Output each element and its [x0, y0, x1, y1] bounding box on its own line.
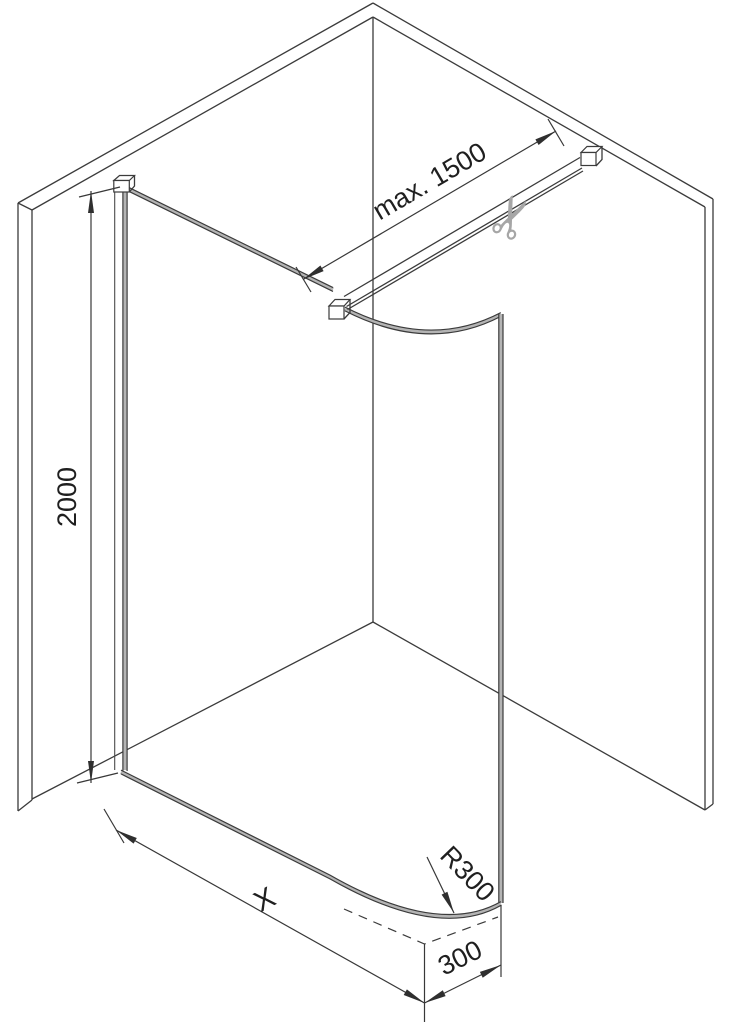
- wall-profile-bracket: [114, 176, 135, 193]
- corner-depth-label: 300: [433, 934, 487, 981]
- dimension-corner-depth: 300: [344, 905, 501, 1022]
- dimension-width: X: [104, 809, 425, 1003]
- dimension-height: 2000: [52, 187, 120, 783]
- side-wall: [373, 3, 713, 810]
- height-label: 2000: [52, 467, 82, 527]
- back-wall: [18, 3, 373, 811]
- technical-drawing-shower-screen: ✂ max. 1500 2000 X 300: [0, 0, 732, 1024]
- drawing-canvas: ✂ max. 1500 2000 X 300: [0, 0, 732, 1024]
- width-label: X: [249, 881, 281, 918]
- bar-wall-bracket: [581, 147, 602, 167]
- bar-length-label: max. 1500: [367, 136, 491, 226]
- dimension-corner-radius: R300: [427, 840, 501, 913]
